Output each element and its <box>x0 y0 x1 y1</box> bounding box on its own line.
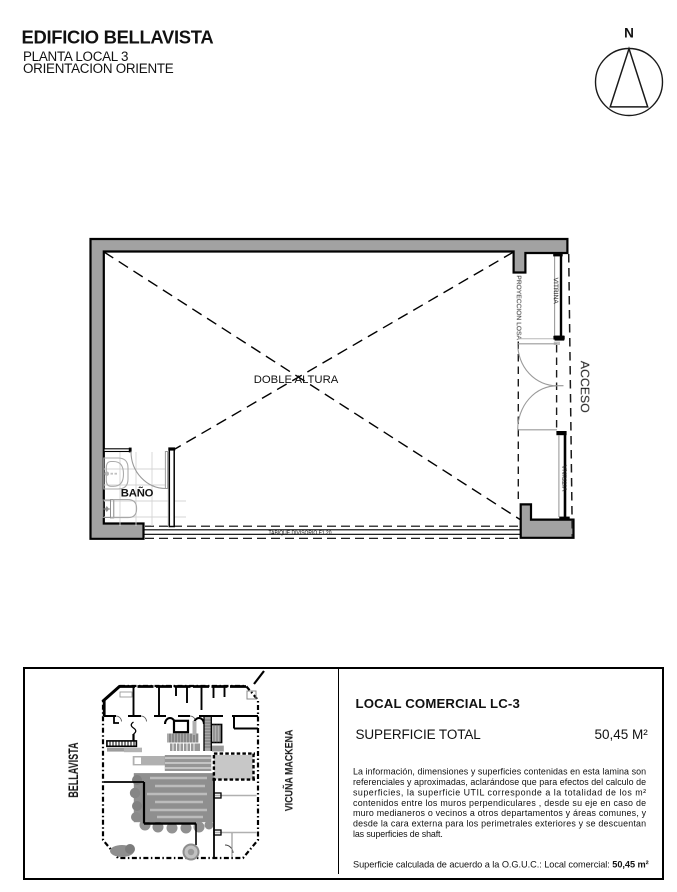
svg-text:desde la cara externa para los: desde la cara externa para los perimetra… <box>353 819 646 829</box>
svg-text:SUPERFICIE TOTAL: SUPERFICIE TOTAL <box>356 727 482 742</box>
svg-text:La información, dimensiones y: La información, dimensiones y superficie… <box>353 767 646 777</box>
svg-text:VICUÑA MACKENA: VICUÑA MACKENA <box>283 730 296 812</box>
svg-text:ORIENTACION ORIENTE: ORIENTACION ORIENTE <box>23 61 174 76</box>
svg-text:EDIFICIO BELLAVISTA: EDIFICIO BELLAVISTA <box>22 27 214 48</box>
svg-text:Superficie calculada de acuerd: Superficie calculada de acuerdo a la O.G… <box>353 859 649 869</box>
svg-text:BELLAVISTA: BELLAVISTA <box>65 743 81 798</box>
svg-text:contenidos entre los muros per: contenidos entre los muros perpendicular… <box>353 798 646 808</box>
svg-text:las superficies de shaft.: las superficies de shaft. <box>353 829 443 839</box>
svg-text:N: N <box>624 25 634 40</box>
svg-text:superficies, la superficie UTI: superficies, la superficie UTIL correspo… <box>353 787 646 797</box>
svg-text:muro medianeros o vecinos a ot: muro medianeros o vecinos a otros depart… <box>353 808 647 818</box>
svg-text:50,45 M²: 50,45 M² <box>595 727 649 742</box>
svg-text:LOCAL COMERCIAL LC-3: LOCAL COMERCIAL LC-3 <box>356 696 520 711</box>
svg-text:referenciales y aproximadas, a: referenciales y aproximadas, aclarándose… <box>353 777 646 787</box>
